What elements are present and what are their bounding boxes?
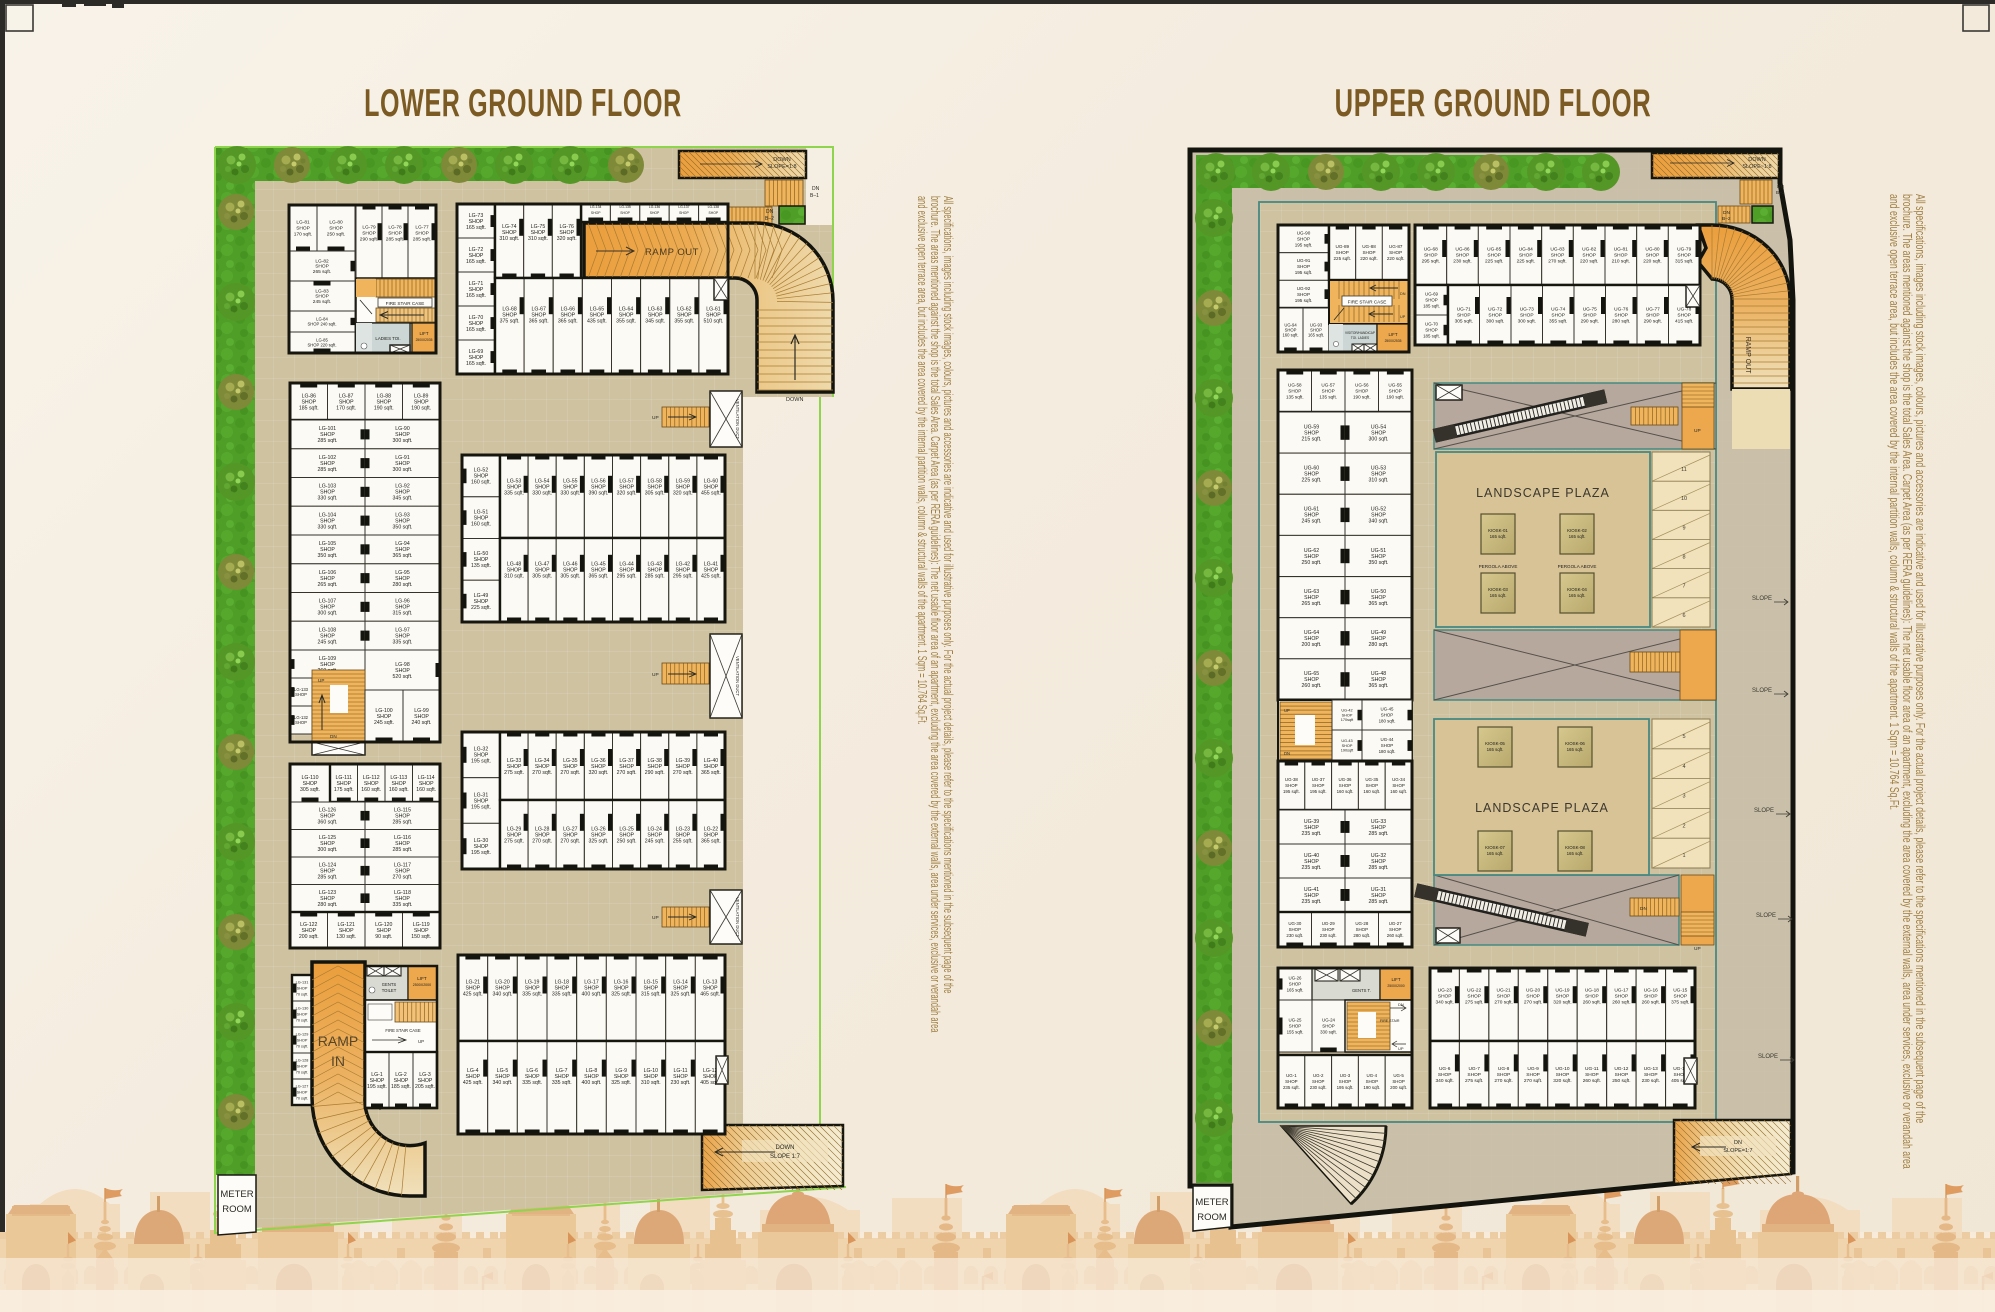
svg-text:LG-117SHOP270 sqft.: LG-117SHOP270 sqft.: [393, 863, 413, 881]
svg-text:LG-27SHOP270 sqft.: LG-27SHOP270 sqft.: [560, 826, 580, 844]
svg-text:LG-125SHOP300 sqft.: LG-125SHOP300 sqft.: [318, 835, 338, 853]
svg-text:UG-11SHOP260 sqft.: UG-11SHOP260 sqft.: [1583, 1066, 1601, 1084]
svg-text:1: 1: [1682, 853, 1685, 859]
svg-text:DN: DN: [1723, 210, 1730, 216]
svg-text:LG-63SHOP345 sqft.: LG-63SHOP345 sqft.: [645, 306, 665, 324]
svg-text:UP: UP: [1694, 946, 1701, 952]
svg-text:UG-31SHOP285 sqft.: UG-31SHOP285 sqft.: [1369, 887, 1389, 905]
svg-text:LG-67SHOP365 sqft.: LG-67SHOP365 sqft.: [529, 306, 549, 324]
svg-text:All specifications, images inc: All specifications, images including sto…: [940, 196, 953, 994]
svg-text:LG-53SHOP335 sqft.: LG-53SHOP335 sqft.: [504, 478, 524, 496]
svg-text:LG-37SHOP270 sqft.: LG-37SHOP270 sqft.: [617, 758, 637, 776]
svg-text:LG-126SHOP360 sqft.: LG-126SHOP360 sqft.: [318, 808, 338, 826]
svg-text:UP: UP: [1694, 428, 1701, 434]
svg-text:LG-71SHOP165 sqft.: LG-71SHOP165 sqft.: [466, 281, 486, 299]
svg-text:UG-33SHOP285 sqft.: UG-33SHOP285 sqft.: [1369, 819, 1389, 837]
svg-text:DOWN: DOWN: [786, 397, 803, 403]
svg-text:LG-58SHOP305 sqft.: LG-58SHOP305 sqft.: [645, 478, 665, 496]
svg-text:LG-59SHOP320 sqft.: LG-59SHOP320 sqft.: [673, 478, 693, 496]
svg-text:LG-91SHOP300 sqft.: LG-91SHOP300 sqft.: [393, 455, 413, 473]
svg-text:LG-119SHOP150 sqft.: LG-119SHOP150 sqft.: [411, 922, 431, 940]
svg-text:6: 6: [1682, 613, 1685, 619]
svg-text:LG-64SHOP355 sqft.: LG-64SHOP355 sqft.: [616, 306, 636, 324]
svg-text:LG-13SHOP465 sqft.: LG-13SHOP465 sqft.: [700, 980, 720, 998]
svg-text:LG-108SHOP245 sqft.: LG-108SHOP245 sqft.: [318, 627, 338, 645]
svg-text:VENTILATION DUCT: VENTILATION DUCT: [735, 399, 740, 439]
svg-text:UPPER GROUND FLOOR: UPPER GROUND FLOOR: [1335, 81, 1652, 125]
svg-text:LIFT: LIFT: [1391, 977, 1400, 982]
svg-text:B–1: B–1: [810, 193, 819, 199]
svg-text:PERGOLA ABOVE: PERGOLA ABOVE: [1558, 564, 1597, 569]
svg-text:2500X2000: 2500X2000: [1387, 984, 1404, 988]
svg-text:FIRE STAIR CASE: FIRE STAIR CASE: [386, 301, 425, 306]
svg-text:DN: DN: [1284, 751, 1290, 756]
svg-text:UG-94SHOP160 sqft.: UG-94SHOP160 sqft.: [1282, 323, 1298, 338]
svg-text:UG-68SHOP295 sqft.: UG-68SHOP295 sqft.: [1422, 247, 1440, 265]
svg-text:2500X2035: 2500X2035: [416, 338, 433, 342]
svg-text:IN: IN: [331, 1053, 345, 1069]
svg-text:UG-23SHOP340 sqft.: UG-23SHOP340 sqft.: [1435, 987, 1453, 1005]
svg-text:DN: DN: [330, 734, 337, 739]
svg-text:LG-10SHOP310 sqft.: LG-10SHOP310 sqft.: [641, 1068, 661, 1086]
svg-text:UG-35SHOP160 sqft.: UG-35SHOP160 sqft.: [1363, 777, 1380, 794]
svg-text:UG-93SHOP165 sqft.: UG-93SHOP165 sqft.: [1308, 323, 1324, 338]
svg-text:LG-11SHOP230 sqft.: LG-11SHOP230 sqft.: [671, 1068, 691, 1086]
svg-text:UG-77SHOP290 sqft.: UG-77SHOP290 sqft.: [1644, 307, 1662, 325]
svg-text:UG-84SHOP225 sqft.: UG-84SHOP225 sqft.: [1517, 247, 1535, 265]
svg-text:KIOSK-03: KIOSK-03: [1488, 587, 1508, 592]
svg-text:UG-72SHOP300 sqft.: UG-72SHOP300 sqft.: [1486, 307, 1504, 325]
svg-text:UG-85SHOP225 sqft.: UG-85SHOP225 sqft.: [1485, 247, 1503, 265]
svg-text:UG-42SHOP170sqft: UG-42SHOP170sqft: [1341, 709, 1354, 722]
svg-text:LG-48SHOP310 sqft.: LG-48SHOP310 sqft.: [504, 562, 524, 580]
svg-text:UG-28SHOP280 sqft.: UG-28SHOP280 sqft.: [1353, 921, 1370, 938]
svg-text:LG-133SHOP: LG-133SHOP: [294, 687, 309, 697]
svg-text:2500X2000: 2500X2000: [413, 983, 431, 987]
svg-text:LG-24SHOP245 sqft.: LG-24SHOP245 sqft.: [645, 826, 665, 844]
svg-text:LG-51SHOP160 sqft.: LG-51SHOP160 sqft.: [471, 509, 491, 527]
svg-text:165 sqft.: 165 sqft.: [1567, 747, 1584, 752]
svg-text:UG-91SHOP195 sqft.: UG-91SHOP195 sqft.: [1295, 258, 1313, 275]
svg-text:LG-19SHOP335 sqft.: LG-19SHOP335 sqft.: [522, 980, 542, 998]
svg-text:UG-36SHOP160 sqft.: UG-36SHOP160 sqft.: [1337, 777, 1354, 794]
svg-text:LG-89SHOP190 sqft.: LG-89SHOP190 sqft.: [411, 393, 431, 411]
svg-text:LG-131SHOP70 sqft.: LG-131SHOP70 sqft.: [296, 980, 309, 996]
svg-text:LG-70SHOP165 sqft.: LG-70SHOP165 sqft.: [466, 315, 486, 333]
svg-text:B–2: B–2: [1722, 216, 1731, 222]
svg-text:UG-34SHOP160 sqft.: UG-34SHOP160 sqft.: [1390, 777, 1407, 794]
svg-text:LG-98SHOP520 sqft.: LG-98SHOP520 sqft.: [393, 662, 413, 680]
svg-text:LG-92SHOP345 sqft.: LG-92SHOP345 sqft.: [393, 484, 413, 502]
svg-text:UG-43SHOP190sqft: UG-43SHOP190sqft: [1341, 739, 1354, 752]
svg-text:GENTS: GENTS: [382, 982, 397, 987]
svg-text:LG-111SHOP175 sqft.: LG-111SHOP175 sqft.: [334, 775, 354, 793]
svg-text:and exclusive open terrace are: and exclusive open terrace area, but inc…: [1887, 194, 1901, 810]
svg-text:UP: UP: [318, 678, 324, 683]
svg-text:LG-40SHOP365 sqft.: LG-40SHOP365 sqft.: [701, 758, 721, 776]
svg-text:DN: DN: [1398, 1002, 1404, 1007]
svg-text:LANDSCAPE PLAZA: LANDSCAPE PLAZA: [1475, 801, 1609, 815]
svg-text:LG-129SHOP70 sqft.: LG-129SHOP70 sqft.: [296, 1032, 309, 1048]
svg-text:UG-10SHOP320 sqft.: UG-10SHOP320 sqft.: [1553, 1066, 1571, 1084]
svg-text:UP: UP: [652, 672, 659, 678]
svg-text:UG-49SHOP280 sqft.: UG-49SHOP280 sqft.: [1369, 630, 1389, 648]
svg-text:LG-34SHOP270 sqft.: LG-34SHOP270 sqft.: [532, 758, 552, 776]
svg-text:LG-66SHOP365 sqft.: LG-66SHOP365 sqft.: [558, 306, 578, 324]
svg-text:LG-46SHOP305 sqft.: LG-46SHOP305 sqft.: [560, 562, 580, 580]
svg-text:LG-43SHOP285 sqft.: LG-43SHOP285 sqft.: [645, 562, 665, 580]
svg-text:LG-42SHOP295 sqft.: LG-42SHOP295 sqft.: [673, 562, 693, 580]
svg-text:KIOSK-07: KIOSK-07: [1485, 845, 1505, 850]
svg-text:LG-74SHOP310 sqft.: LG-74SHOP310 sqft.: [499, 224, 519, 242]
svg-text:LG-95SHOP280 sqft.: LG-95SHOP280 sqft.: [393, 570, 413, 588]
svg-text:brochure. The areas mentioned: brochure. The areas mentioned against th…: [1900, 194, 1914, 1169]
svg-text:and exclusive open terrace are: and exclusive open terrace area, but inc…: [914, 196, 927, 725]
svg-text:LG-39SHOP270 sqft.: LG-39SHOP270 sqft.: [673, 758, 693, 776]
svg-text:All specifications, images inc: All specifications, images including sto…: [1913, 194, 1927, 1123]
svg-text:UG-82SHOP220 sqft.: UG-82SHOP220 sqft.: [1580, 247, 1598, 265]
svg-text:SLOPE=1:8: SLOPE=1:8: [767, 164, 796, 170]
svg-text:LG-87SHOP170 sqft.: LG-87SHOP170 sqft.: [336, 393, 356, 411]
svg-text:UG-39SHOP235 sqft.: UG-39SHOP235 sqft.: [1302, 819, 1322, 837]
svg-text:DOWN: DOWN: [1748, 157, 1765, 163]
svg-text:RAMP: RAMP: [318, 1033, 358, 1049]
svg-text:UG-78SHOP415 sqft.: UG-78SHOP415 sqft.: [1675, 307, 1693, 325]
svg-text:DN: DN: [1640, 906, 1647, 912]
svg-text:UG-69SHOP185 sqft.: UG-69SHOP185 sqft.: [1423, 292, 1440, 309]
svg-text:LG-30SHOP195 sqft.: LG-30SHOP195 sqft.: [471, 838, 491, 856]
svg-text:LG-29SHOP275 sqft.: LG-29SHOP275 sqft.: [504, 826, 524, 844]
svg-text:UG-61SHOP245 sqft.: UG-61SHOP245 sqft.: [1302, 507, 1322, 525]
svg-text:UG-30SHOP230 sqft.: UG-30SHOP230 sqft.: [1286, 921, 1303, 938]
svg-text:LG-77SHOP285 sqft.: LG-77SHOP285 sqft.: [413, 224, 431, 242]
svg-text:UG-59SHOP215 sqft.: UG-59SHOP215 sqft.: [1302, 424, 1322, 442]
svg-text:LADIES TOI.: LADIES TOI.: [375, 336, 400, 341]
svg-text:LOWER GROUND FLOOR: LOWER GROUND FLOOR: [364, 80, 682, 124]
svg-text:LG-86SHOP185 sqft.: LG-86SHOP185 sqft.: [299, 393, 319, 411]
svg-text:UG-51SHOP350 sqft.: UG-51SHOP350 sqft.: [1369, 548, 1389, 566]
svg-text:LG-44SHOP295 sqft.: LG-44SHOP295 sqft.: [617, 562, 637, 580]
svg-text:UG-22SHOP275 sqft.: UG-22SHOP275 sqft.: [1465, 987, 1483, 1005]
svg-text:LG-76SHOP320 sqft.: LG-76SHOP320 sqft.: [557, 224, 577, 242]
svg-text:KIOSK-04: KIOSK-04: [1567, 587, 1587, 592]
svg-text:FIRE STAIR CASE: FIRE STAIR CASE: [1348, 300, 1387, 305]
svg-text:B–2: B–2: [765, 216, 774, 222]
svg-text:UG-74SHOP355 sqft.: UG-74SHOP355 sqft.: [1549, 307, 1567, 325]
svg-text:LG-56SHOP390 sqft.: LG-56SHOP390 sqft.: [588, 478, 608, 496]
svg-text:LG-97SHOP335 sqft.: LG-97SHOP335 sqft.: [393, 627, 413, 645]
svg-text:165 sqft.: 165 sqft.: [1567, 851, 1584, 856]
svg-text:3: 3: [1682, 794, 1685, 800]
svg-text:LG-52SHOP160 sqft.: LG-52SHOP160 sqft.: [471, 468, 491, 486]
svg-text:165 sqft.: 165 sqft.: [1490, 534, 1507, 539]
svg-text:2500X2535: 2500X2535: [1385, 339, 1402, 343]
svg-text:UG-55SHOP190 sqft.: UG-55SHOP190 sqft.: [1386, 383, 1404, 400]
svg-text:LG-127SHOP70 sqft.: LG-127SHOP70 sqft.: [296, 1084, 309, 1100]
svg-text:11: 11: [1681, 467, 1687, 473]
svg-text:UP: UP: [418, 1039, 424, 1044]
svg-text:brochure. The areas mentioned: brochure. The areas mentioned against th…: [927, 196, 940, 1033]
svg-text:LG-102SHOP285 sqft.: LG-102SHOP285 sqft.: [318, 455, 338, 473]
svg-text:LG-122SHOP200 sqft.: LG-122SHOP200 sqft.: [299, 922, 319, 940]
svg-text:LG-16SHOP325 sqft.: LG-16SHOP325 sqft.: [611, 980, 631, 998]
svg-text:LG-73SHOP165 sqft.: LG-73SHOP165 sqft.: [466, 213, 486, 231]
svg-text:UG-26SHOP165 sqft.: UG-26SHOP165 sqft.: [1287, 976, 1304, 993]
svg-text:LG-124SHOP285 sqft.: LG-124SHOP285 sqft.: [318, 863, 338, 881]
svg-text:165 sqft.: 165 sqft.: [1569, 534, 1586, 539]
svg-text:LG-45SHOP365 sqft.: LG-45SHOP365 sqft.: [588, 562, 608, 580]
svg-text:DOWN: DOWN: [776, 1145, 795, 1151]
svg-text:LG-41SHOP425 sqft.: LG-41SHOP425 sqft.: [701, 562, 721, 580]
svg-text:UG-15SHOP375 sqft.: UG-15SHOP375 sqft.: [1671, 987, 1689, 1005]
svg-text:LG-17SHOP400 sqft.: LG-17SHOP400 sqft.: [582, 980, 602, 998]
svg-text:LG-79SHOP290 sqft.: LG-79SHOP290 sqft.: [360, 224, 378, 242]
svg-text:165 sqft.: 165 sqft.: [1569, 593, 1586, 598]
svg-text:165 sqft.: 165 sqft.: [1487, 851, 1504, 856]
svg-text:LG-14SHOP325 sqft.: LG-14SHOP325 sqft.: [671, 980, 691, 998]
svg-text:LG-68SHOP375 sqft.: LG-68SHOP375 sqft.: [500, 306, 520, 324]
svg-text:LIFT: LIFT: [417, 976, 427, 981]
svg-text:UG-40SHOP235 sqft.: UG-40SHOP235 sqft.: [1302, 853, 1322, 871]
svg-text:UG-41SHOP235 sqft.: UG-41SHOP235 sqft.: [1302, 887, 1322, 905]
svg-text:FIRE STAIR CASE: FIRE STAIR CASE: [385, 1028, 420, 1033]
svg-text:VENTILATION DUCT: VENTILATION DUCT: [735, 897, 740, 937]
svg-text:LG-104SHOP330 sqft.: LG-104SHOP330 sqft.: [318, 512, 338, 530]
svg-text:5: 5: [1682, 734, 1685, 740]
svg-text:LG-62SHOP355 sqft.: LG-62SHOP355 sqft.: [674, 306, 694, 324]
svg-text:SLOPE: SLOPE: [1752, 688, 1772, 694]
svg-text:LG-47SHOP305 sqft.: LG-47SHOP305 sqft.: [532, 562, 552, 580]
svg-text:VISITOR/HANDICAP: VISITOR/HANDICAP: [1345, 331, 1375, 335]
svg-text:UG-62SHOP250 sqft.: UG-62SHOP250 sqft.: [1302, 548, 1322, 566]
svg-text:DN: DN: [1777, 184, 1784, 190]
svg-text:LIFT: LIFT: [419, 331, 428, 336]
svg-text:UG-88SHOP220 sqft.: UG-88SHOP220 sqft.: [1360, 244, 1378, 261]
svg-text:LG-49SHOP225 sqft.: LG-49SHOP225 sqft.: [471, 593, 491, 611]
svg-text:UG-20SHOP270 sqft.: UG-20SHOP270 sqft.: [1524, 987, 1542, 1005]
svg-text:UG-73SHOP300 sqft.: UG-73SHOP300 sqft.: [1518, 307, 1536, 325]
svg-text:LG-106SHOP265 sqft.: LG-106SHOP265 sqft.: [318, 570, 338, 588]
svg-text:165 sqft.: 165 sqft.: [1487, 747, 1504, 752]
svg-text:KIOSK-02: KIOSK-02: [1567, 528, 1587, 533]
svg-text:LG-101SHOP285 sqft.: LG-101SHOP285 sqft.: [318, 426, 338, 444]
svg-text:UG-75SHOP290 sqft.: UG-75SHOP290 sqft.: [1581, 307, 1599, 325]
svg-text:UG-86SHOP230 sqft.: UG-86SHOP230 sqft.: [1453, 247, 1471, 265]
svg-text:LG-75SHOP310 sqft.: LG-75SHOP310 sqft.: [528, 224, 548, 242]
svg-text:LG-69SHOP165 sqft.: LG-69SHOP165 sqft.: [466, 349, 486, 367]
svg-text:LG-23SHOP255 sqft.: LG-23SHOP255 sqft.: [673, 826, 693, 844]
svg-text:DOWN: DOWN: [773, 157, 790, 163]
svg-text:2: 2: [1682, 823, 1685, 829]
svg-text:UP: UP: [1400, 315, 1406, 319]
svg-text:UG-24SHOP330 sqft.: UG-24SHOP330 sqft.: [1320, 1018, 1337, 1035]
svg-text:UG-92SHOP195 sqft.: UG-92SHOP195 sqft.: [1295, 286, 1313, 303]
svg-text:LG-103SHOP330 sqft.: LG-103SHOP330 sqft.: [318, 484, 338, 502]
svg-text:TOILET: TOILET: [382, 988, 397, 993]
svg-text:UG-52SHOP340 sqft.: UG-52SHOP340 sqft.: [1369, 507, 1389, 525]
svg-text:KIOSK-06: KIOSK-06: [1565, 741, 1585, 746]
svg-text:DN: DN: [766, 209, 774, 215]
svg-text:KIOSK-08: KIOSK-08: [1565, 845, 1585, 850]
svg-text:LG-123SHOP280 sqft.: LG-123SHOP280 sqft.: [318, 890, 338, 908]
svg-text:LG-28SHOP270 sqft.: LG-28SHOP270 sqft.: [532, 826, 552, 844]
svg-text:UG-50SHOP365 sqft.: UG-50SHOP365 sqft.: [1369, 589, 1389, 607]
svg-text:LG-132SHOP: LG-132SHOP: [294, 715, 309, 725]
svg-text:DN: DN: [812, 186, 820, 192]
svg-text:LG-55SHOP330 sqft.: LG-55SHOP330 sqft.: [560, 478, 580, 496]
svg-text:UP: UP: [652, 415, 659, 421]
svg-text:UG-17SHOP260 sqft.: UG-17SHOP260 sqft.: [1612, 987, 1630, 1005]
svg-text:LG-112SHOP160 sqft.: LG-112SHOP160 sqft.: [361, 775, 381, 793]
svg-text:LG-15SHOP315 sqft.: LG-15SHOP315 sqft.: [641, 980, 661, 998]
svg-text:SLOPE: SLOPE: [1754, 808, 1774, 814]
svg-text:9: 9: [1682, 525, 1685, 531]
svg-text:UG-65SHOP260 sqft.: UG-65SHOP260 sqft.: [1302, 671, 1322, 689]
svg-text:LG-38SHOP290 sqft.: LG-38SHOP290 sqft.: [645, 758, 665, 776]
svg-text:UG-70SHOP185 sqft.: UG-70SHOP185 sqft.: [1423, 322, 1440, 339]
svg-text:UG-45SHOP180 sqft.: UG-45SHOP180 sqft.: [1379, 707, 1396, 724]
svg-text:LG-78SHOP285 sqft.: LG-78SHOP285 sqft.: [386, 224, 404, 242]
svg-text:LG-61SHOP510 sqft.: LG-61SHOP510 sqft.: [703, 306, 723, 324]
svg-text:LG-33SHOP275 sqft.: LG-33SHOP275 sqft.: [504, 758, 524, 776]
svg-text:LG-99SHOP240 sqft.: LG-99SHOP240 sqft.: [412, 708, 432, 726]
svg-text:UG-18SHOP260 sqft.: UG-18SHOP260 sqft.: [1583, 987, 1601, 1005]
svg-text:LG-22SHOP365 sqft.: LG-22SHOP365 sqft.: [701, 826, 721, 844]
svg-text:UG-80SHOP220 sqft.: UG-80SHOP220 sqft.: [1643, 247, 1661, 265]
svg-text:SLOPE 1:7: SLOPE 1:7: [770, 1154, 801, 1160]
svg-text:UG-21SHOP270 sqft.: UG-21SHOP270 sqft.: [1494, 987, 1512, 1005]
svg-text:UG-32SHOP285 sqft.: UG-32SHOP285 sqft.: [1369, 853, 1389, 871]
svg-text:LG-20SHOP340 sqft.: LG-20SHOP340 sqft.: [493, 980, 513, 998]
svg-text:LG-32SHOP195 sqft.: LG-32SHOP195 sqft.: [471, 747, 491, 765]
svg-text:UG-12SHOP250 sqft.: UG-12SHOP250 sqft.: [1612, 1066, 1630, 1084]
svg-text:LG-113SHOP160 sqft.: LG-113SHOP160 sqft.: [389, 775, 409, 793]
svg-text:UG-56SHOP190 sqft.: UG-56SHOP190 sqft.: [1353, 383, 1371, 400]
svg-text:LG-82SHOP265 sqft.: LG-82SHOP265 sqft.: [313, 258, 331, 275]
svg-text:B–1: B–1: [1776, 190, 1785, 196]
svg-text:UG-44SHOP180 sqft.: UG-44SHOP180 sqft.: [1379, 737, 1396, 754]
svg-text:LG-65SHOP435 sqft.: LG-65SHOP435 sqft.: [587, 306, 607, 324]
svg-text:UG-57SHOP135 sqft.: UG-57SHOP135 sqft.: [1319, 383, 1337, 400]
svg-text:7: 7: [1682, 584, 1685, 590]
svg-text:UG-76SHOP280 sqft.: UG-76SHOP280 sqft.: [1612, 307, 1630, 325]
svg-text:UP: UP: [1284, 708, 1290, 713]
svg-text:LG-81SHOP170 sqft.: LG-81SHOP170 sqft.: [294, 220, 312, 238]
svg-text:LG-25SHOP250 sqft.: LG-25SHOP250 sqft.: [617, 826, 637, 844]
svg-text:UG-54SHOP300 sqft.: UG-54SHOP300 sqft.: [1369, 424, 1389, 442]
svg-text:SLOPE~1:8: SLOPE~1:8: [1742, 164, 1771, 170]
svg-text:LG-18SHOP335 sqft.: LG-18SHOP335 sqft.: [552, 980, 572, 998]
svg-text:165 sqft.: 165 sqft.: [1490, 593, 1507, 598]
svg-text:10: 10: [1681, 496, 1687, 502]
svg-text:UG-19SHOP320 sqft.: UG-19SHOP320 sqft.: [1553, 987, 1571, 1005]
svg-text:LG-121SHOP130 sqft.: LG-121SHOP130 sqft.: [336, 922, 356, 940]
svg-text:RAMP OUT: RAMP OUT: [645, 247, 699, 258]
svg-text:UG-63SHOP265 sqft.: UG-63SHOP265 sqft.: [1302, 589, 1322, 607]
svg-text:UG-13SHOP230 sqft.: UG-13SHOP230 sqft.: [1642, 1066, 1660, 1084]
svg-text:GENTS T.: GENTS T.: [1352, 988, 1371, 993]
svg-text:LG-21SHOP425 sqft.: LG-21SHOP425 sqft.: [463, 980, 483, 998]
svg-text:VENTILATION DUCT: VENTILATION DUCT: [735, 656, 740, 696]
svg-text:UG-71SHOP305 sqft.: UG-71SHOP305 sqft.: [1455, 307, 1473, 325]
svg-text:LG-80SHOP250 sqft.: LG-80SHOP250 sqft.: [327, 220, 345, 238]
svg-text:KIOSK-01: KIOSK-01: [1488, 528, 1508, 533]
svg-text:LG-96SHOP315 sqft.: LG-96SHOP315 sqft.: [393, 599, 413, 617]
svg-text:UG-29SHOP230 sqft.: UG-29SHOP230 sqft.: [1320, 921, 1337, 938]
svg-text:SLOPE: SLOPE: [1756, 913, 1776, 919]
svg-text:LG-36SHOP320 sqft.: LG-36SHOP320 sqft.: [588, 758, 608, 776]
svg-text:UG-38SHOP195 sqft.: UG-38SHOP195 sqft.: [1283, 777, 1300, 794]
svg-text:UG-64SHOP200 sqft.: UG-64SHOP200 sqft.: [1302, 630, 1322, 648]
svg-text:LG-88SHOP190 sqft.: LG-88SHOP190 sqft.: [374, 393, 394, 411]
svg-text:LG-93SHOP350 sqft.: LG-93SHOP350 sqft.: [393, 512, 413, 530]
svg-text:SLOPE: SLOPE: [1758, 1054, 1778, 1060]
svg-text:LG-128SHOP70 sqft.: LG-128SHOP70 sqft.: [296, 1058, 309, 1074]
svg-text:METER: METER: [220, 1189, 253, 1200]
svg-text:UG-48SHOP365 sqft.: UG-48SHOP365 sqft.: [1369, 671, 1389, 689]
svg-text:DN: DN: [1734, 1140, 1742, 1146]
svg-text:LG-94SHOP365 sqft.: LG-94SHOP365 sqft.: [393, 541, 413, 559]
svg-text:DN: DN: [1400, 292, 1406, 296]
svg-text:LG-115SHOP285 sqft.: LG-115SHOP285 sqft.: [393, 808, 413, 826]
svg-text:UG-87SHOP220 sqft.: UG-87SHOP220 sqft.: [1387, 244, 1405, 261]
svg-text:UG-79SHOP315 sqft.: UG-79SHOP315 sqft.: [1675, 247, 1693, 265]
svg-text:LG-31SHOP195 sqft.: LG-31SHOP195 sqft.: [471, 792, 491, 810]
svg-text:LG-114SHOP160 sqft.: LG-114SHOP160 sqft.: [416, 775, 436, 793]
svg-text:UG-58SHOP135 sqft.: UG-58SHOP135 sqft.: [1286, 383, 1304, 400]
svg-text:UP: UP: [652, 915, 659, 921]
svg-text:UG-16SHOP260 sqft.: UG-16SHOP260 sqft.: [1642, 987, 1660, 1005]
svg-text:ROOM: ROOM: [1197, 1212, 1227, 1223]
svg-text:LG-35SHOP270 sqft.: LG-35SHOP270 sqft.: [560, 758, 580, 776]
svg-text:LG-54SHOP330 sqft.: LG-54SHOP330 sqft.: [532, 478, 552, 496]
svg-text:LG-90SHOP300 sqft.: LG-90SHOP300 sqft.: [393, 426, 413, 444]
svg-text:KIOSK-05: KIOSK-05: [1485, 741, 1505, 746]
svg-text:LG-50SHOP135 sqft.: LG-50SHOP135 sqft.: [471, 551, 491, 569]
svg-text:LG-120SHOP90 sqft.: LG-120SHOP90 sqft.: [375, 922, 392, 940]
svg-text:LG-130SHOP70 sqft.: LG-130SHOP70 sqft.: [296, 1006, 309, 1022]
svg-text:4: 4: [1682, 764, 1685, 770]
svg-text:UG-83SHOP270 sqft.: UG-83SHOP270 sqft.: [1548, 247, 1566, 265]
svg-text:LG-60SHOP455 sqft.: LG-60SHOP455 sqft.: [701, 478, 721, 496]
svg-text:LANDSCAPE PLAZA: LANDSCAPE PLAZA: [1476, 486, 1610, 500]
svg-text:METER: METER: [1195, 1197, 1228, 1208]
svg-text:LG-110SHOP305 sqft.: LG-110SHOP305 sqft.: [300, 775, 320, 793]
svg-text:PERGOLA ABOVE: PERGOLA ABOVE: [1479, 564, 1518, 569]
svg-text:LG-105SHOP350 sqft.: LG-105SHOP350 sqft.: [318, 541, 338, 559]
svg-text:TOI. LADIES: TOI. LADIES: [1351, 336, 1369, 340]
svg-text:UG-25SHOP155 sqft.: UG-25SHOP155 sqft.: [1287, 1018, 1304, 1035]
svg-text:UG-60SHOP225 sqft.: UG-60SHOP225 sqft.: [1302, 466, 1322, 484]
svg-text:UG-37SHOP195 sqft.: UG-37SHOP195 sqft.: [1310, 777, 1327, 794]
svg-text:FIRE STAIR: FIRE STAIR: [1380, 1019, 1400, 1023]
svg-text:ROOM: ROOM: [222, 1204, 252, 1215]
svg-text:UG-89SHOP225 sqft.: UG-89SHOP225 sqft.: [1333, 244, 1351, 261]
svg-text:UG-27SHOP260 sqft.: UG-27SHOP260 sqft.: [1387, 921, 1404, 938]
svg-text:LIFT: LIFT: [1388, 332, 1397, 337]
svg-text:UG-81SHOP210 sqft.: UG-81SHOP210 sqft.: [1612, 247, 1630, 265]
svg-text:SLOPE=1:7: SLOPE=1:7: [1723, 1148, 1752, 1154]
svg-text:LG-107SHOP300 sqft.: LG-107SHOP300 sqft.: [318, 599, 338, 617]
svg-text:LG-83SHOP245 sqft.: LG-83SHOP245 sqft.: [313, 288, 331, 305]
svg-text:LG-26SHOP325 sqft.: LG-26SHOP325 sqft.: [588, 826, 608, 844]
svg-text:UP: UP: [1398, 1046, 1404, 1051]
svg-text:8: 8: [1682, 555, 1685, 561]
svg-text:SLOPE: SLOPE: [1752, 596, 1772, 602]
svg-text:LG-118SHOP335 sqft.: LG-118SHOP335 sqft.: [393, 890, 413, 908]
svg-text:UG-90SHOP195 sqft.: UG-90SHOP195 sqft.: [1295, 230, 1313, 247]
svg-text:UG-53SHOP310 sqft.: UG-53SHOP310 sqft.: [1369, 466, 1389, 484]
